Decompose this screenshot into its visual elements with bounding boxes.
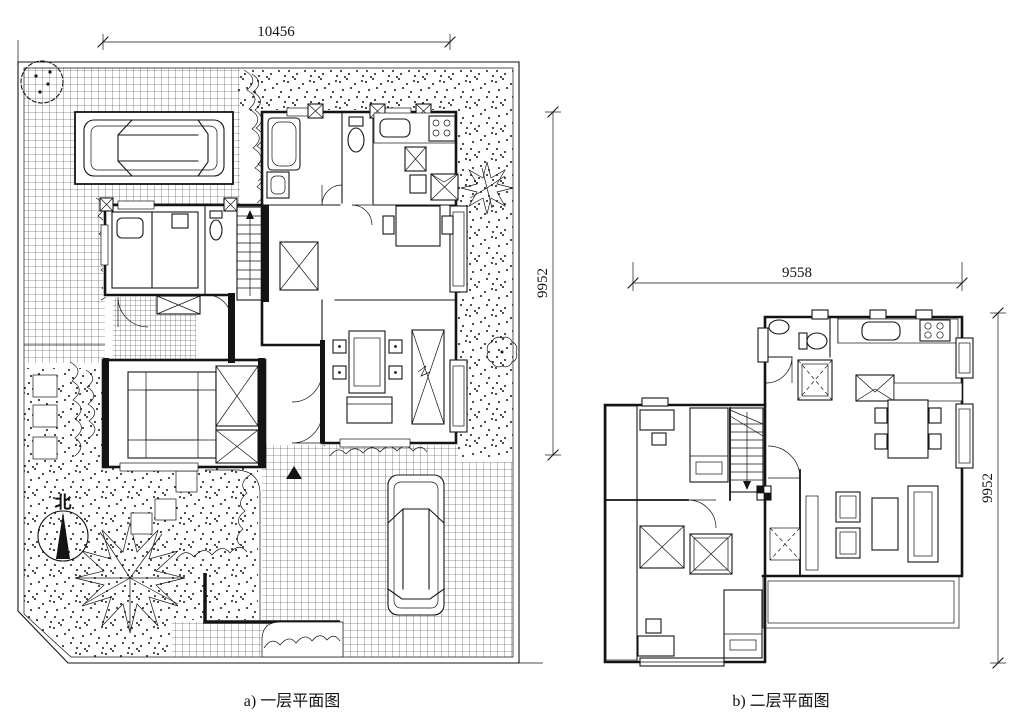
car-icon [84,120,224,176]
wardrobe-icon [412,330,444,424]
second-floor-plan: 9558 9952 b) 二层平面图 [605,262,1006,710]
desk-icon [640,410,674,430]
desk-icon [638,636,674,656]
tatami-room [128,366,258,463]
rear-balcony [763,576,959,628]
drawing-sheet: 北 [0,0,1024,726]
sink-icon [380,119,410,137]
bay-window [450,360,467,432]
caption-second-floor: b) 二层平面图 [732,693,829,710]
cabinet-icon [431,174,458,200]
fridge-icon [405,147,426,171]
tv-board-icon [806,496,818,570]
toilet-icon [210,211,222,240]
bed-icon [690,408,728,482]
sink-icon [862,322,900,340]
dimension-right: 9952 [980,308,1006,668]
dim-label: 9558 [782,265,812,281]
coffee-table-icon [349,331,385,393]
side-balcony [606,406,637,660]
shaft-icon [757,486,771,500]
sink-icon [769,320,789,334]
floor-plan-drawing: 北 [0,0,1024,726]
bed-icon [724,590,762,658]
coffee-table-icon [872,498,898,550]
stove-icon [920,320,950,341]
wardrobe-icon [216,366,258,463]
car-icon [388,475,444,615]
dim-label: 9952 [980,473,996,503]
garage [75,112,233,184]
dim-label: 9952 [535,268,551,298]
caption-first-floor: a) 一层平面图 [244,693,340,710]
toilet-icon [799,333,827,349]
sofa-icon [347,397,392,423]
dimension-right: 9952 [535,107,561,460]
sofa-icon [908,486,938,562]
first-floor-plan: 北 [18,24,561,710]
closet [280,242,318,290]
dimension-top: 10456 [98,24,455,50]
dim-label: 10456 [257,24,295,40]
fridge-icon [798,360,832,400]
toilet-icon [348,117,364,152]
dining-table-icon [396,206,440,246]
wardrobe-icon [157,296,200,314]
stove-icon [429,116,455,141]
dining-table-icon [888,400,928,458]
north-label: 北 [55,493,72,512]
dimension-top: 9558 [628,262,967,291]
living-room [333,330,444,424]
